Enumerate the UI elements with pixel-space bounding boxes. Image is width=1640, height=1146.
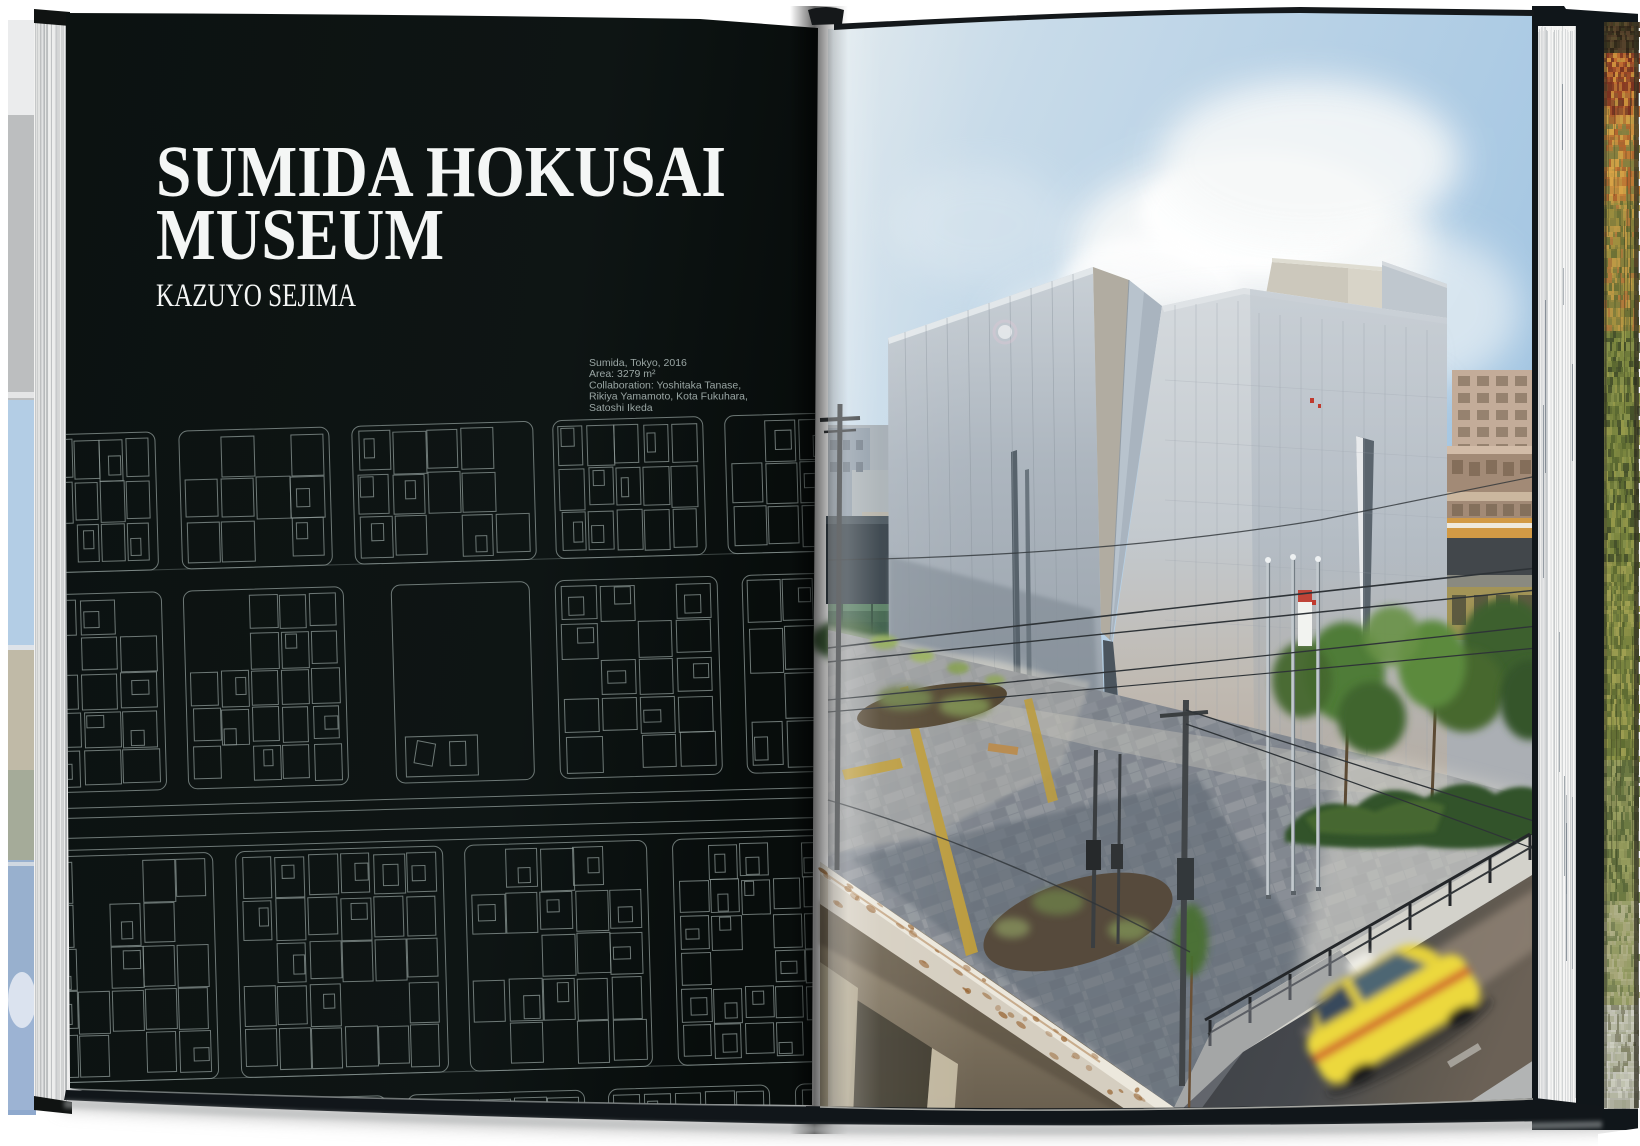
svg-text:Sumida, Tokyo, 2016: Sumida, Tokyo, 2016 [589, 357, 687, 369]
svg-text:KAZUYO SEJIMA: KAZUYO SEJIMA [156, 278, 356, 314]
svg-text:Satoshi Ikeda: Satoshi Ikeda [589, 402, 653, 414]
svg-text:MUSEUM: MUSEUM [156, 194, 444, 275]
svg-text:Area: 3279 m²: Area: 3279 m² [589, 368, 656, 380]
svg-text:Rikiya Yamamoto, Kota Fukuhara: Rikiya Yamamoto, Kota Fukuhara, [589, 391, 748, 403]
svg-text:Collaboration: Yoshitaka Tanas: Collaboration: Yoshitaka Tanase, [589, 379, 741, 391]
